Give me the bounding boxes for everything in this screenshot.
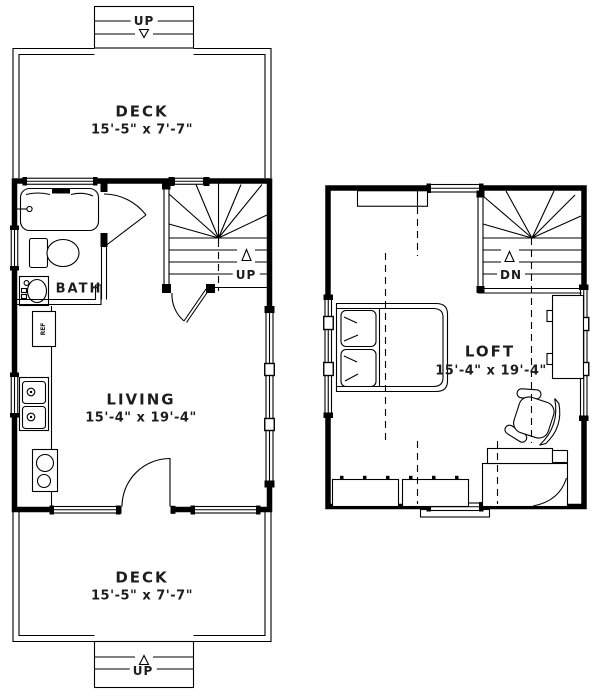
bed: [337, 304, 448, 392]
window: [265, 306, 275, 488]
window: [23, 177, 98, 186]
living-label: LIVING: [106, 393, 175, 408]
loft-label: LOFT: [465, 345, 515, 360]
stairs-up-label: UP: [233, 269, 260, 281]
window: [10, 373, 19, 418]
bathtub: [17, 189, 99, 231]
staircase-loft: [477, 191, 582, 294]
kitchen: [20, 306, 58, 506]
pillow: [341, 311, 376, 347]
kitchen-sink: [20, 378, 49, 431]
refrigerator-label: REF: [41, 323, 47, 336]
window: [50, 506, 121, 515]
top-deck-label: DECK: [115, 105, 168, 120]
staircase-first-floor: [162, 184, 267, 323]
top-steps-up-label: UP: [131, 15, 158, 27]
window: [10, 226, 19, 271]
desk: [547, 296, 584, 379]
living-dims: 15'-4" x 19'-4": [85, 412, 197, 425]
bottom-deck-dims: 15'-5" x 7'-7": [91, 590, 193, 603]
top-deck-dims: 15'-5" x 7'-7": [91, 124, 193, 137]
shelf: [358, 191, 428, 207]
range: [33, 450, 58, 492]
loft-dims: 15'-4" x 19'-4": [435, 365, 547, 378]
bath-label: BATH: [56, 283, 103, 296]
entry-door: [117, 458, 176, 514]
bathroom-sink: [20, 277, 49, 306]
bottom-steps-up-label: UP: [130, 665, 157, 677]
window: [427, 184, 484, 194]
bathroom-door: [104, 194, 146, 247]
window: [324, 295, 334, 419]
bottom-deck-label: DECK: [115, 571, 168, 586]
floor-plan-canvas: UP DECK 15'-5" x 7'-7" BATH UP REF LIVIN…: [0, 0, 600, 695]
office-chair: [501, 383, 566, 452]
door-swing-arc: [122, 459, 170, 507]
loft-railing: [333, 476, 469, 507]
stairs-dn-label: DN: [497, 269, 525, 281]
window: [191, 506, 261, 515]
toilet: [30, 239, 80, 268]
window: [169, 177, 210, 186]
winder-treads: [483, 191, 581, 238]
armchair: [483, 449, 568, 507]
stair-door: [172, 289, 209, 323]
